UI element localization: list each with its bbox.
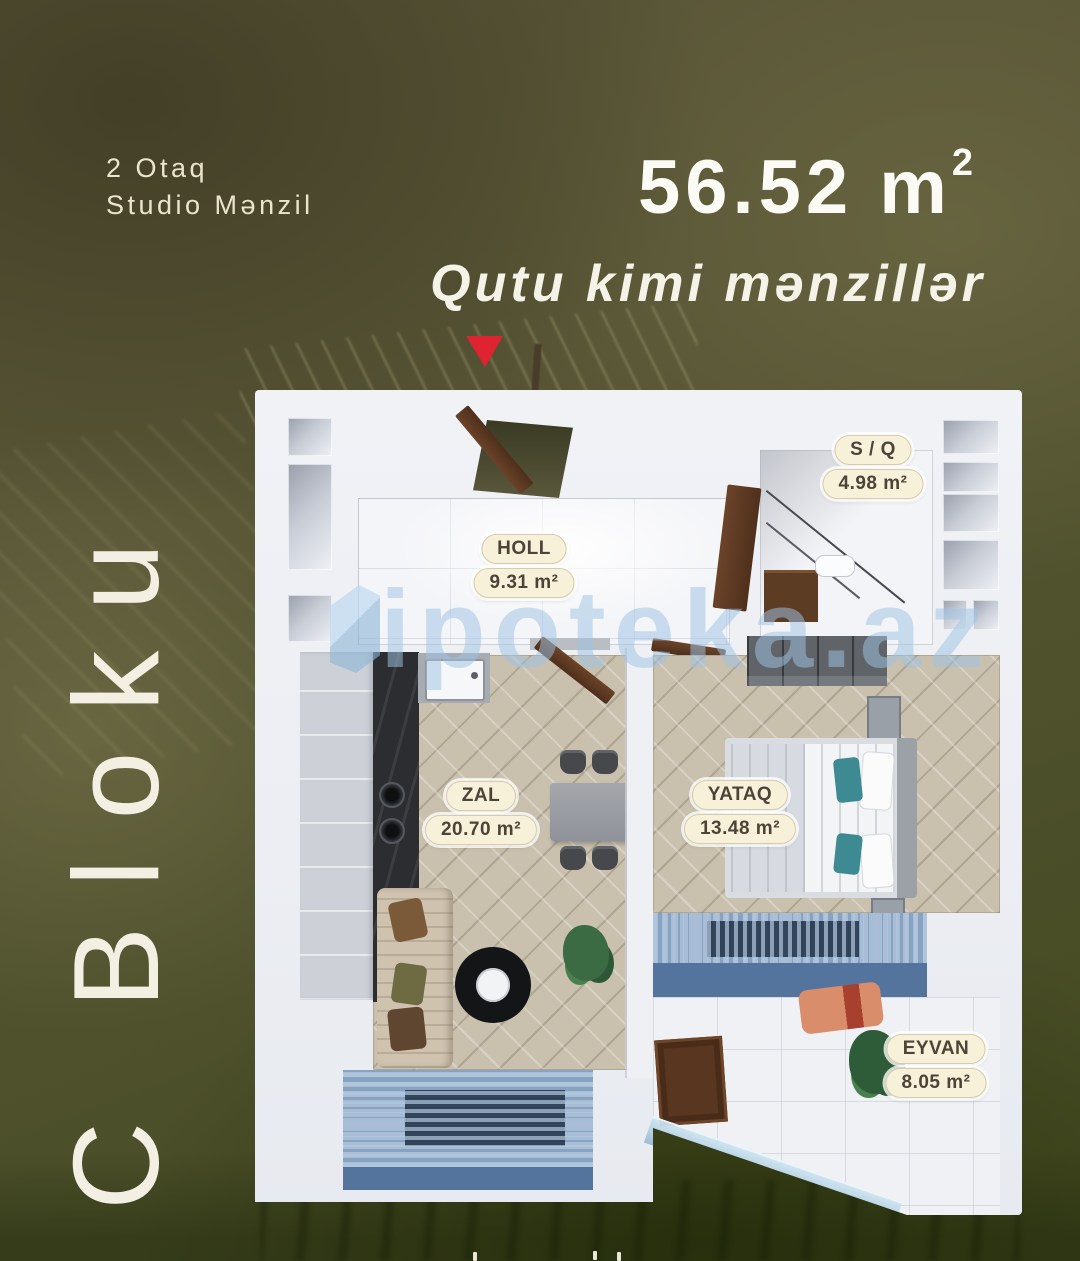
shaft-niche bbox=[943, 420, 999, 454]
wall-niche bbox=[288, 418, 332, 456]
room-name-badge: ZAL bbox=[446, 781, 516, 811]
apartment-type-line2: Studio Mənzil bbox=[106, 187, 314, 224]
room-name-badge: YATAQ bbox=[692, 780, 788, 810]
dining-chair bbox=[592, 846, 618, 870]
bed-pillow-teal bbox=[833, 833, 863, 875]
coffee-table-top bbox=[476, 968, 510, 1002]
room-name-badge: S / Q bbox=[834, 435, 912, 465]
divider-wall bbox=[627, 648, 653, 1078]
room-badge-zal: ZAL 20.70 m² bbox=[425, 781, 537, 845]
room-area-badge: 13.48 m² bbox=[684, 814, 796, 844]
entrance-pointer-icon bbox=[466, 336, 503, 367]
bedroom-window-sheers bbox=[653, 913, 927, 963]
stove-burner bbox=[379, 818, 405, 844]
zal-plant bbox=[563, 925, 609, 981]
dining-chair bbox=[560, 846, 586, 870]
wall-niche bbox=[288, 595, 332, 642]
apartment-type-label: 2 Otaq Studio Mənzil bbox=[106, 150, 314, 224]
room-name-badge: HOLL bbox=[481, 534, 567, 564]
room-area-badge: 4.98 m² bbox=[823, 469, 924, 499]
room-badge-sq: S / Q 4.98 m² bbox=[823, 435, 924, 499]
room-area-badge: 20.70 m² bbox=[425, 815, 537, 845]
bed-pillow-white bbox=[859, 751, 895, 811]
bed-pillow-teal bbox=[833, 757, 863, 803]
bed-pillow-white bbox=[859, 833, 895, 889]
room-badge-eyvan: EYVAN 8.05 m² bbox=[886, 1034, 987, 1098]
nightstand bbox=[867, 696, 901, 740]
sofa bbox=[377, 888, 453, 1068]
room-name-badge: EYVAN bbox=[887, 1034, 986, 1064]
room-badge-yataq: YATAQ 13.48 m² bbox=[684, 780, 796, 844]
total-area-superscript: 2 bbox=[952, 142, 973, 184]
cropped-caption-fragment bbox=[593, 1251, 597, 1260]
total-area-label: 56.52 m2 bbox=[638, 142, 1030, 231]
headboard bbox=[897, 738, 917, 898]
dining-chair bbox=[592, 750, 618, 774]
dining-chair bbox=[560, 750, 586, 774]
watermark: ipoteka.az bbox=[380, 566, 992, 693]
apartment-type-line1: 2 Otaq bbox=[106, 150, 314, 187]
sofa-pillow bbox=[390, 962, 427, 1006]
tagline: Qutu kimi mənzillər bbox=[372, 254, 1044, 314]
poster-root: 2 Otaq Studio Mənzil 56.52 m2 Qutu kimi … bbox=[0, 0, 1080, 1261]
wheat-stalk bbox=[531, 344, 541, 392]
total-area-value: 56.52 m bbox=[638, 145, 952, 230]
balcony-door-panel bbox=[654, 1036, 728, 1127]
shaft-niche bbox=[943, 494, 999, 532]
shaft-niche bbox=[943, 462, 999, 492]
bedroom-window-sill bbox=[653, 963, 927, 997]
wall-niche bbox=[288, 464, 332, 570]
sofa-pillow bbox=[387, 897, 429, 943]
kitchen-cabinets bbox=[300, 652, 373, 1000]
dining-table bbox=[550, 783, 628, 841]
cropped-caption-fragment bbox=[473, 1252, 477, 1261]
stove-burner bbox=[379, 782, 405, 808]
room-area-badge: 8.05 m² bbox=[886, 1068, 987, 1098]
block-label: C Bloku bbox=[46, 392, 186, 1210]
room-area-badge: 9.31 m² bbox=[474, 568, 575, 598]
zal-window-sheers bbox=[343, 1070, 593, 1167]
zal-window-sill bbox=[343, 1167, 593, 1190]
sofa-pillow bbox=[387, 1006, 427, 1052]
room-badge-holl: HOLL 9.31 m² bbox=[474, 534, 575, 598]
floorplan: HOLL 9.31 m² S / Q 4.98 m² ZAL 20.70 m² … bbox=[255, 390, 1022, 1215]
coffee-table bbox=[455, 947, 531, 1023]
cropped-caption-fragment bbox=[617, 1252, 621, 1261]
